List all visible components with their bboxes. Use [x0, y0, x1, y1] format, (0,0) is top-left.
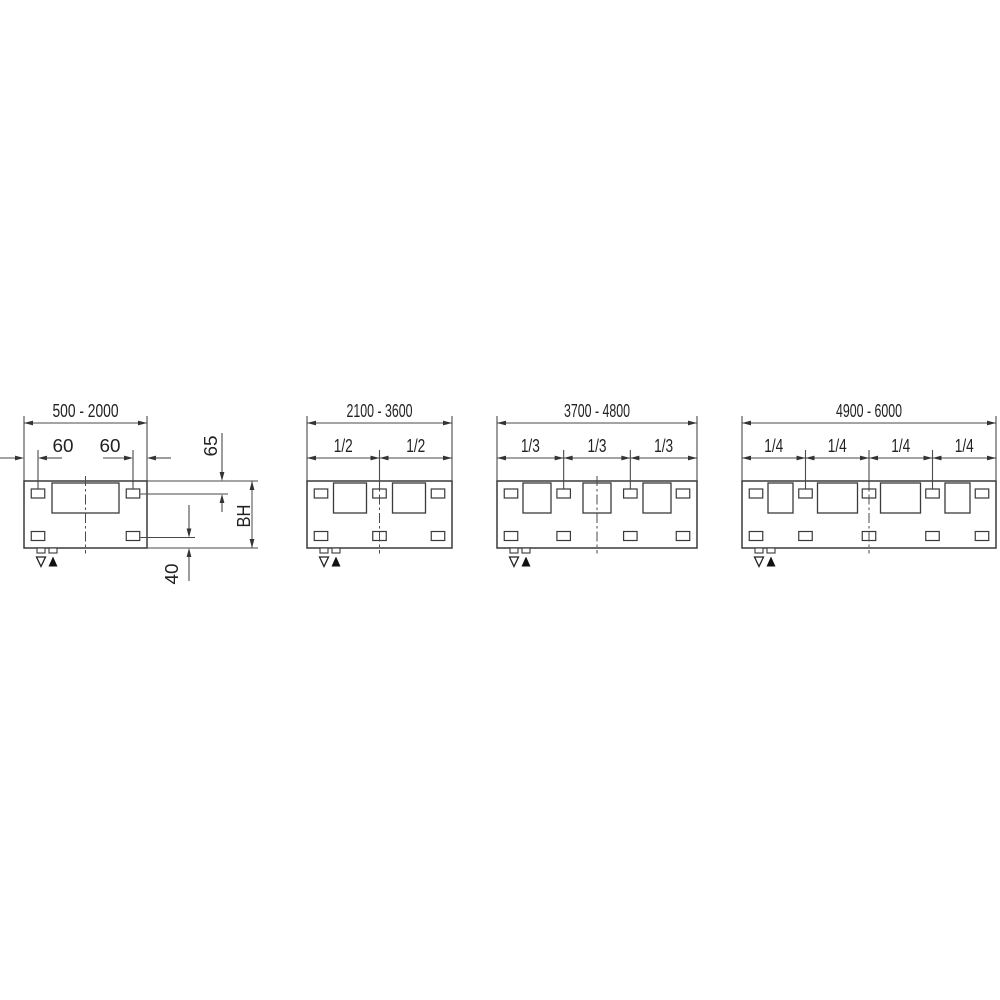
diagram-2-open-triangle-symbol — [320, 557, 329, 567]
diagram-4-mounting-slot-top — [799, 489, 813, 498]
diagram-3-filled-triangle-symbol — [522, 557, 531, 567]
d1-offset-arrow — [147, 456, 156, 461]
d1-dim40-arrow — [187, 548, 192, 557]
diagram-4-width-arrow-right — [987, 421, 996, 426]
diagram-3-division-fraction-label: 1/3 — [521, 436, 540, 456]
diagram-2-width-range-label: 2100 - 3600 — [347, 401, 413, 421]
diagram-2-filled-triangle-symbol — [332, 557, 341, 567]
diagram-4-mounting-slot-bottom — [799, 532, 813, 541]
diagram-4-filled-triangle-symbol — [767, 557, 776, 567]
d1-dimBH-arrow — [250, 539, 255, 548]
diagram-1-mounting-slot-top — [126, 489, 140, 498]
diagram-2-large-opening — [393, 483, 426, 513]
diagram-2-large-opening — [334, 483, 367, 513]
diagram-1-mounting-slot-bottom — [31, 532, 45, 541]
diagram-1-foot — [49, 548, 57, 553]
diagram-3-mounting-slot-bottom — [624, 532, 638, 541]
d1-dim40-label: 40 — [162, 564, 182, 585]
diagram-2-division-fraction-label: 1/2 — [334, 436, 353, 456]
diagram-3-open-triangle-symbol — [510, 557, 519, 567]
diagram-2-foot — [332, 548, 340, 553]
d1-dim65-label: 65 — [201, 436, 221, 457]
diagram-2-division-fraction-label: 1/2 — [406, 436, 425, 456]
d1-offset-arrow — [15, 456, 24, 461]
diagram-4-division-arrow — [869, 456, 878, 461]
diagram-4-width-range-label: 4900 - 6000 — [836, 401, 902, 421]
diagram-4-mounting-slot-top — [749, 489, 763, 498]
diagram-2-division-arrow-right — [443, 456, 452, 461]
diagram-4-mounting-slot-bottom — [926, 532, 940, 541]
diagram-4-large-opening — [945, 483, 970, 513]
diagram-4-mounting-slot-top — [926, 489, 940, 498]
diagram-4-foot — [767, 548, 775, 553]
d1-edge-offset-label: 60 — [100, 436, 121, 456]
diagram-4-division-arrow — [806, 456, 815, 461]
diagram-2-foot — [320, 548, 328, 553]
diagram-4-division-fraction-label: 1/4 — [891, 436, 910, 456]
diagram-2-width-arrow-left — [307, 421, 316, 426]
diagram-2-width-arrow-right — [443, 421, 452, 426]
diagram-3-mounting-slot-top — [557, 489, 571, 498]
diagram-3-mounting-slot-bottom — [504, 532, 518, 541]
d1-dimBH-arrow — [250, 481, 255, 490]
diagram-1-width-arrow-right — [138, 421, 147, 426]
diagram-2-division-arrow — [371, 456, 380, 461]
diagram-4-division-arrow-right — [987, 456, 996, 461]
diagram-3-division-arrow-left — [497, 456, 506, 461]
diagram-4-division-arrow-left — [742, 456, 751, 461]
diagram-3-division-arrow — [564, 456, 573, 461]
diagram-4-foot — [755, 548, 763, 553]
diagram-4-large-opening — [818, 483, 858, 513]
diagram-3-mounting-slot-bottom — [676, 532, 690, 541]
diagram-1-open-triangle-symbol — [37, 557, 46, 567]
diagram-2-division-arrow — [380, 456, 389, 461]
diagram-3-division-arrow — [621, 456, 630, 461]
diagram-3-large-opening — [643, 483, 671, 513]
diagram-2-division-arrow-left — [307, 456, 316, 461]
diagram-4-mounting-slot-top — [975, 489, 989, 498]
diagram-3-division-fraction-label: 1/3 — [654, 436, 673, 456]
diagram-3-division-arrow-right — [688, 456, 697, 461]
diagram-4-division-arrow — [933, 456, 942, 461]
diagram-4-mounting-slot-bottom — [749, 532, 763, 541]
diagram-4-division-fraction-label: 1/4 — [955, 436, 974, 456]
d1-offset-arrow — [38, 456, 47, 461]
d1-dim65-arrow — [220, 494, 225, 503]
diagram-4-division-arrow — [797, 456, 806, 461]
diagram-1-width-arrow-left — [24, 421, 33, 426]
diagram-3-mounting-slot-top — [624, 489, 638, 498]
diagram-1-filled-triangle-symbol — [49, 557, 58, 567]
diagram-3-foot — [522, 548, 530, 553]
diagram-4-mounting-slot-bottom — [975, 532, 989, 541]
diagram-4-division-arrow — [924, 456, 933, 461]
diagram-4-open-triangle-symbol — [755, 557, 764, 567]
d1-dimBH-label: BH — [234, 505, 254, 528]
diagram-1-width-range-label: 500 - 2000 — [53, 401, 119, 421]
d1-offset-arrow — [124, 456, 133, 461]
diagram-3-division-arrow — [555, 456, 564, 461]
mounting-dimensions-drawing: 500 - 2000606065BH402100 - 36001/21/2370… — [0, 0, 1000, 1000]
diagram-2-mounting-slot-bottom — [431, 532, 445, 541]
diagram-2-mounting-slot-top — [314, 489, 328, 498]
diagram-1-foot — [37, 548, 45, 553]
diagram-1-mounting-slot-top — [31, 489, 45, 498]
diagram-3-width-arrow-left — [497, 421, 506, 426]
diagram-3-width-arrow-right — [688, 421, 697, 426]
diagram-4-division-arrow — [860, 456, 869, 461]
diagram-2-mounting-slot-top — [431, 489, 445, 498]
diagram-4-width-arrow-left — [742, 421, 751, 426]
diagram-2-mounting-slot-bottom — [314, 532, 328, 541]
diagram-3-mounting-slot-bottom — [557, 532, 571, 541]
diagram-3-mounting-slot-top — [676, 489, 690, 498]
diagram-4-large-opening — [768, 483, 793, 513]
d1-dim65-arrow — [220, 472, 225, 481]
diagram-3-division-arrow — [630, 456, 639, 461]
diagram-4-division-fraction-label: 1/4 — [764, 436, 783, 456]
diagram-3-large-opening — [523, 483, 551, 513]
diagram-4-large-opening — [881, 483, 921, 513]
d1-edge-offset-label: 60 — [53, 436, 74, 456]
diagram-1-mounting-slot-bottom — [126, 532, 140, 541]
diagram-4-division-fraction-label: 1/4 — [828, 436, 847, 456]
technical-drawing-canvas: 500 - 2000606065BH402100 - 36001/21/2370… — [0, 0, 1000, 1000]
diagram-3-mounting-slot-top — [504, 489, 518, 498]
diagram-3-foot — [510, 548, 518, 553]
d1-dim40-arrow — [187, 529, 192, 538]
diagram-3-width-range-label: 3700 - 4800 — [564, 401, 630, 421]
diagram-3-division-fraction-label: 1/3 — [588, 436, 607, 456]
